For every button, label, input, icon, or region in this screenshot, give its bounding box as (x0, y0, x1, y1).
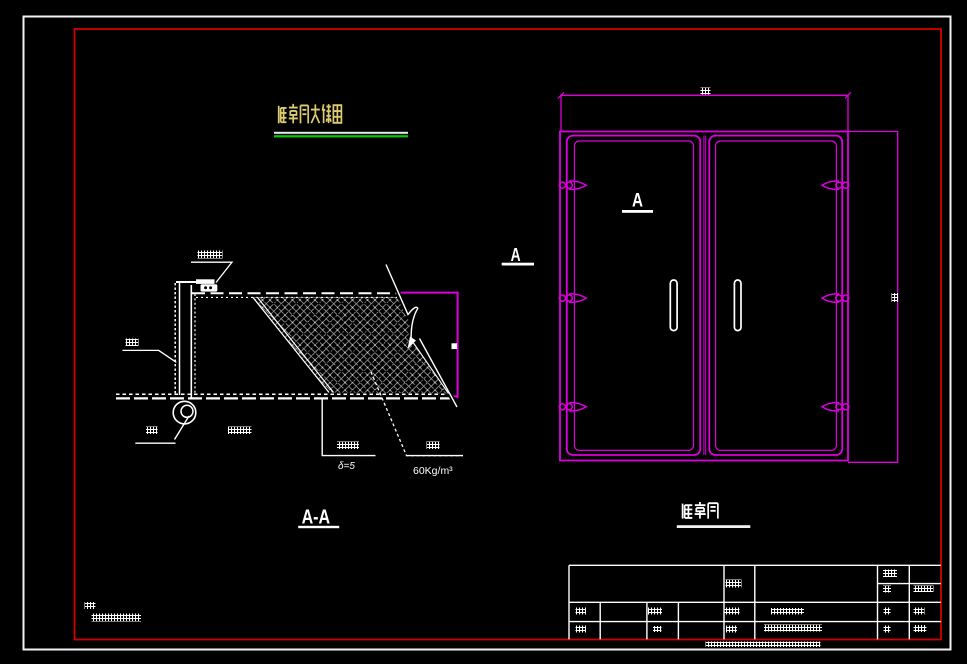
svg-text:A: A (511, 245, 521, 265)
svg-text:δ=5: δ=5 (338, 461, 355, 472)
svg-text:A-A: A-A (302, 507, 331, 529)
svg-text:60Kg/m³: 60Kg/m³ (413, 465, 453, 477)
svg-text:A: A (632, 191, 643, 212)
